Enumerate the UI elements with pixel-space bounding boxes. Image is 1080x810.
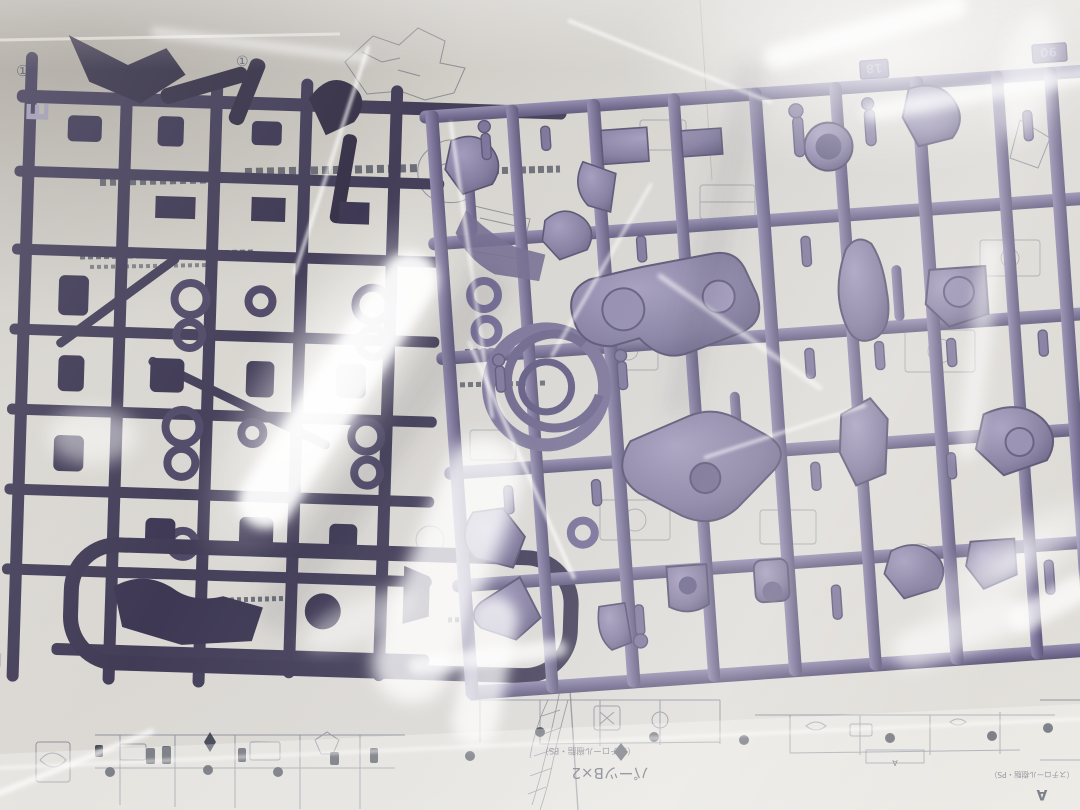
svg-text:90: 90	[1040, 44, 1058, 59]
runner-tag-18: 18	[860, 59, 889, 79]
svg-text:18: 18	[865, 61, 883, 76]
purple-runner-sprue: 18 90	[0, 0, 1080, 810]
photo-canvas: パーツB×2 （スチロール樹脂・PS） A （スチロール樹脂・PS） A ① ①	[0, 0, 1080, 810]
runner-tag-90: 90	[1032, 43, 1067, 63]
